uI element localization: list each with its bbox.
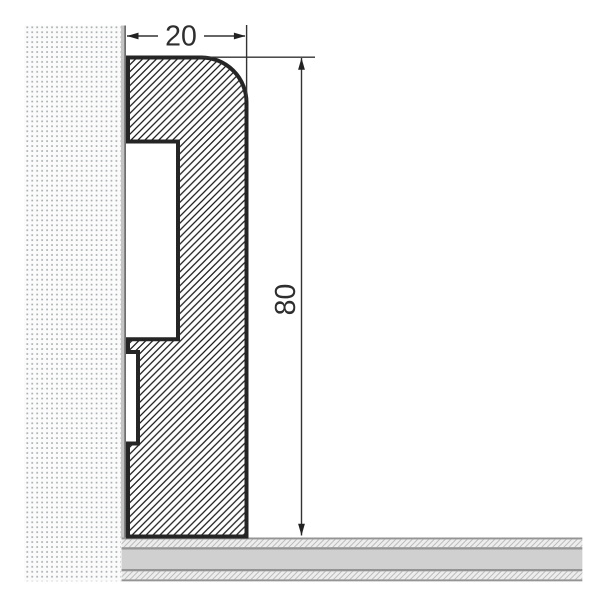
- svg-text:80: 80: [270, 284, 302, 316]
- svg-text:20: 20: [165, 20, 197, 52]
